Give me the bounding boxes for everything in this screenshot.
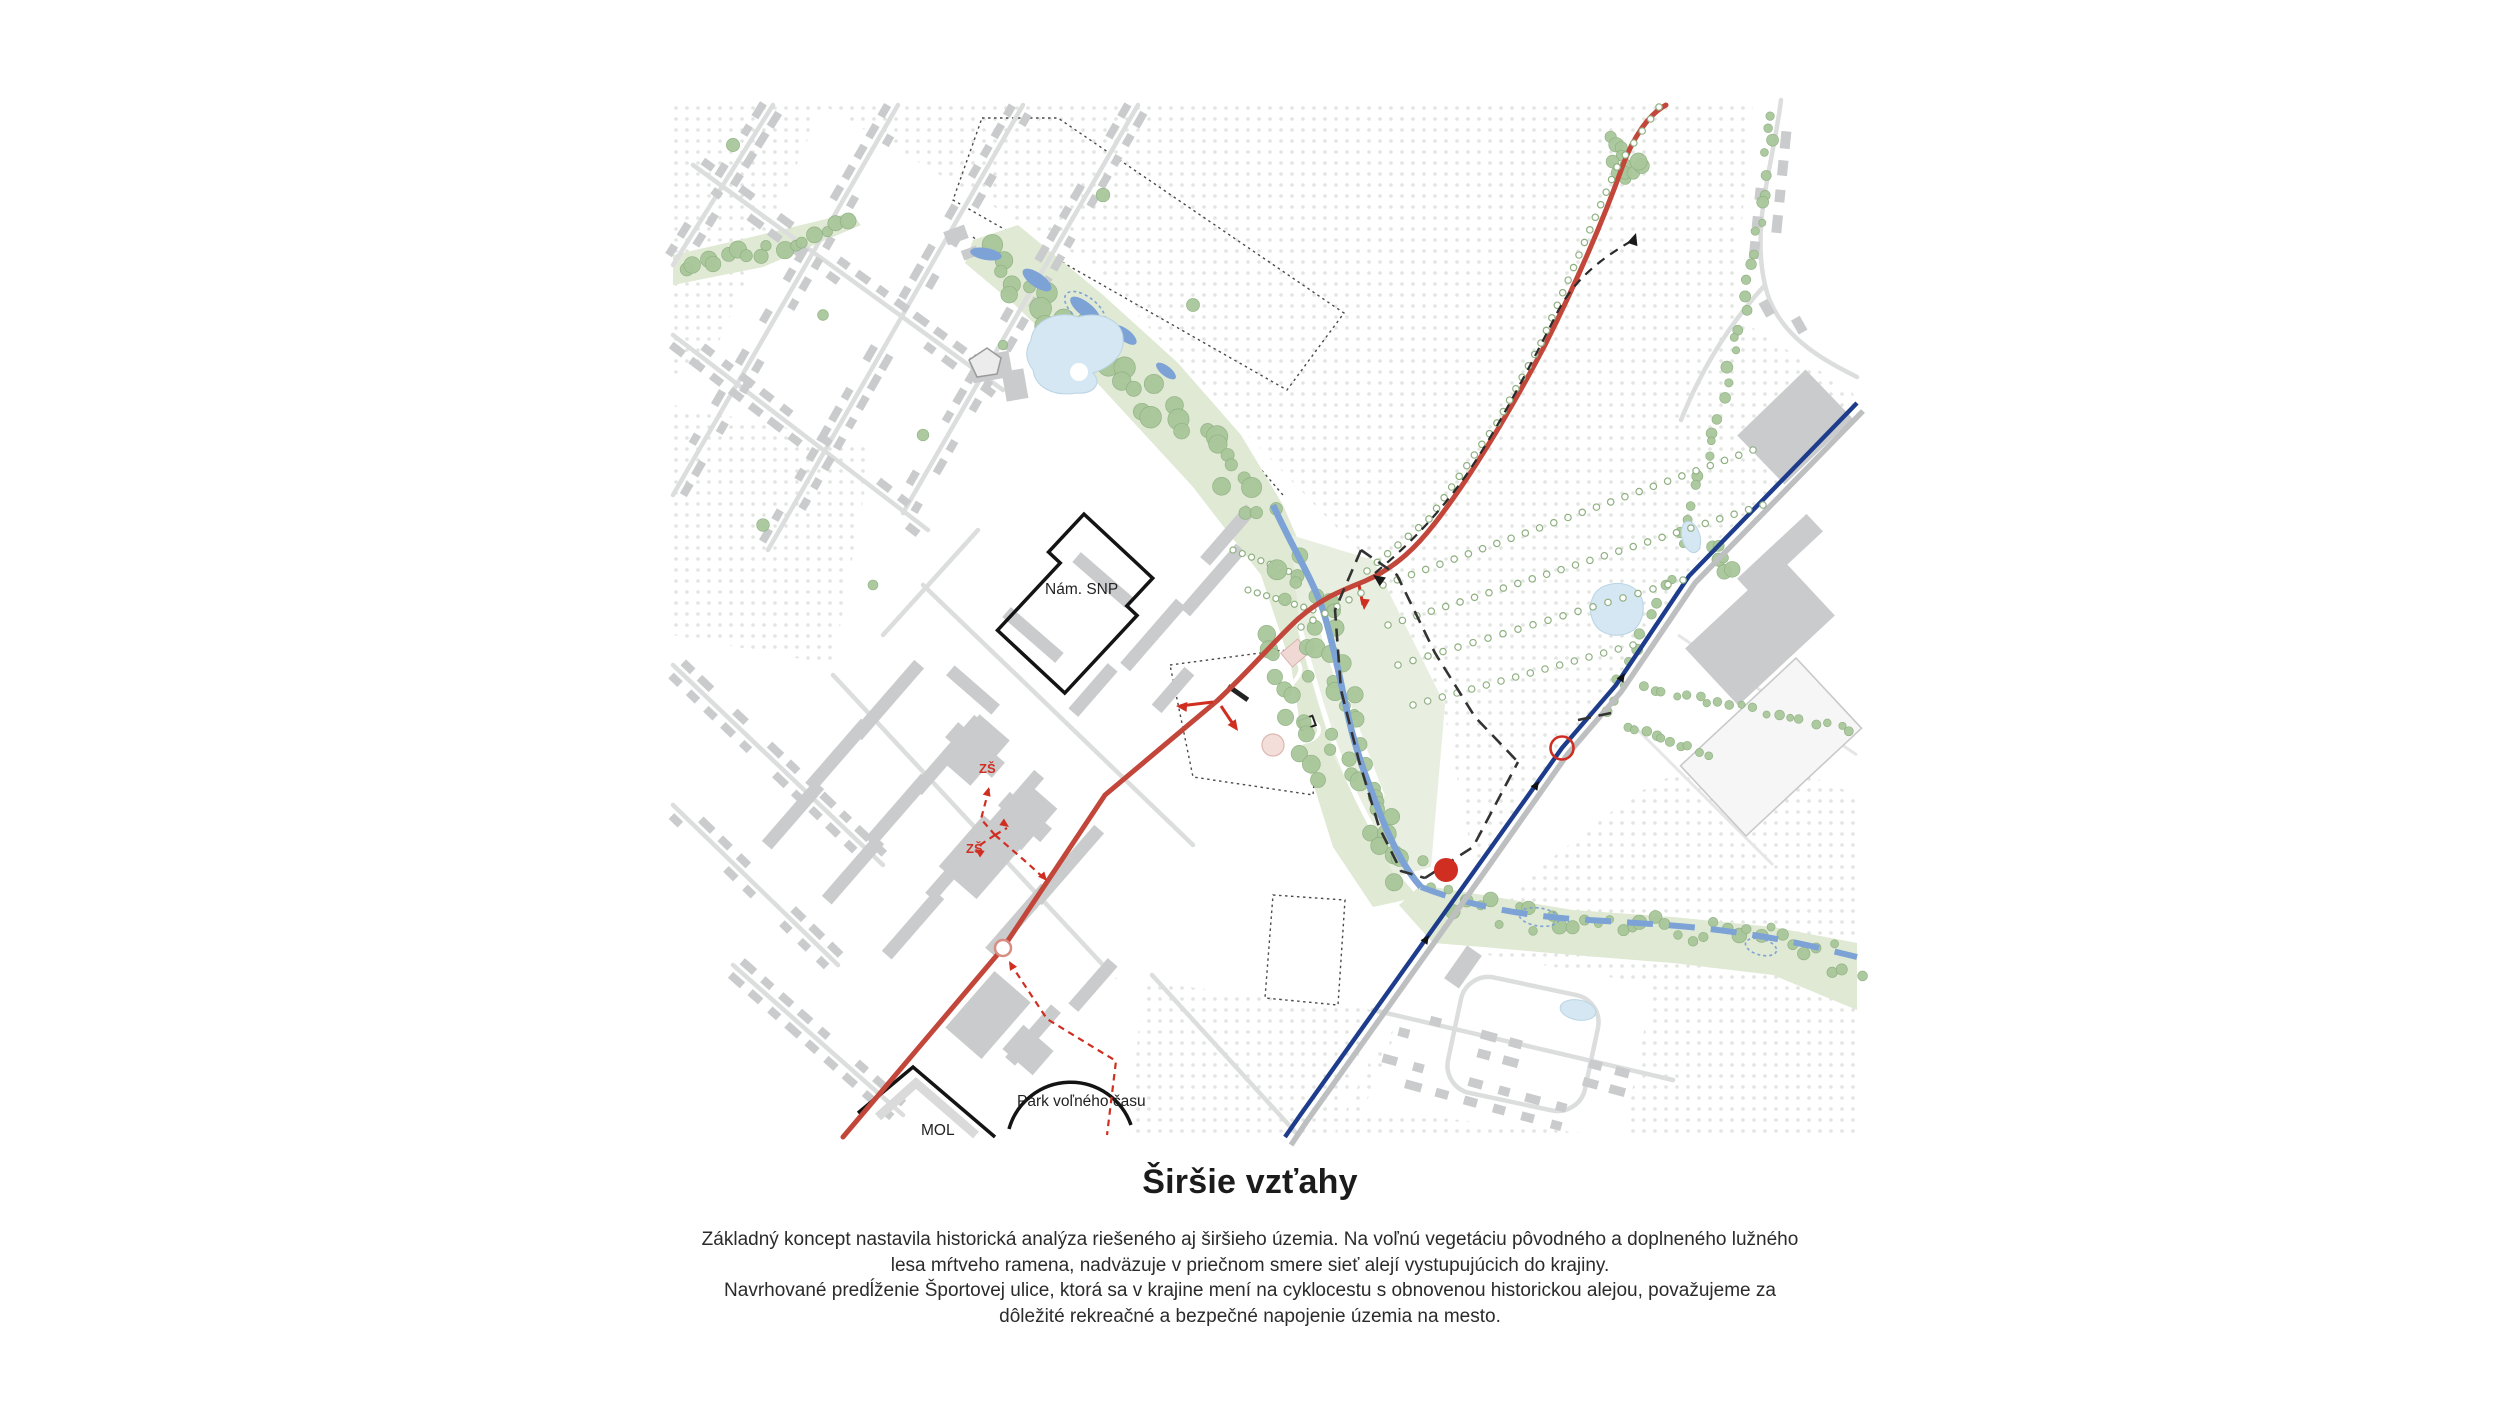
field-dot-pattern-layer [673,105,1857,1137]
nam-snp-label: Nám. SNP [1045,581,1118,598]
page-title: Širšie vzťahy [0,1163,2500,1202]
caption-line-3: Navrhované predĺženie Športovej ulice, k… [0,1278,2500,1304]
park-label: Park voľného času [1017,1093,1146,1110]
caption: Základný koncept nastavila historická an… [0,1227,2500,1329]
red-dot-marker [1434,858,1458,882]
caption-line-4: dôležité rekreačné a bezpečné napojenie … [0,1304,2500,1330]
gas-station-label: MOL [921,1122,955,1139]
nam-snp-square-outline [986,514,1163,693]
roundabout [995,940,1011,956]
caption-line-1: Základný koncept nastavila historická an… [0,1227,2500,1253]
caption-line-2: lesa mŕtveho ramena, nadväzuje v priečno… [0,1253,2500,1279]
map-canvas: Nám. SNP ZŠ ZŠ Park voľného času MOL [673,105,1855,1137]
site-plan-map: Nám. SNP ZŠ ZŠ Park voľného času MOL [673,105,1855,1137]
school-label-1: ZŠ [979,761,996,776]
school-label-2: ZŠ [966,841,983,856]
